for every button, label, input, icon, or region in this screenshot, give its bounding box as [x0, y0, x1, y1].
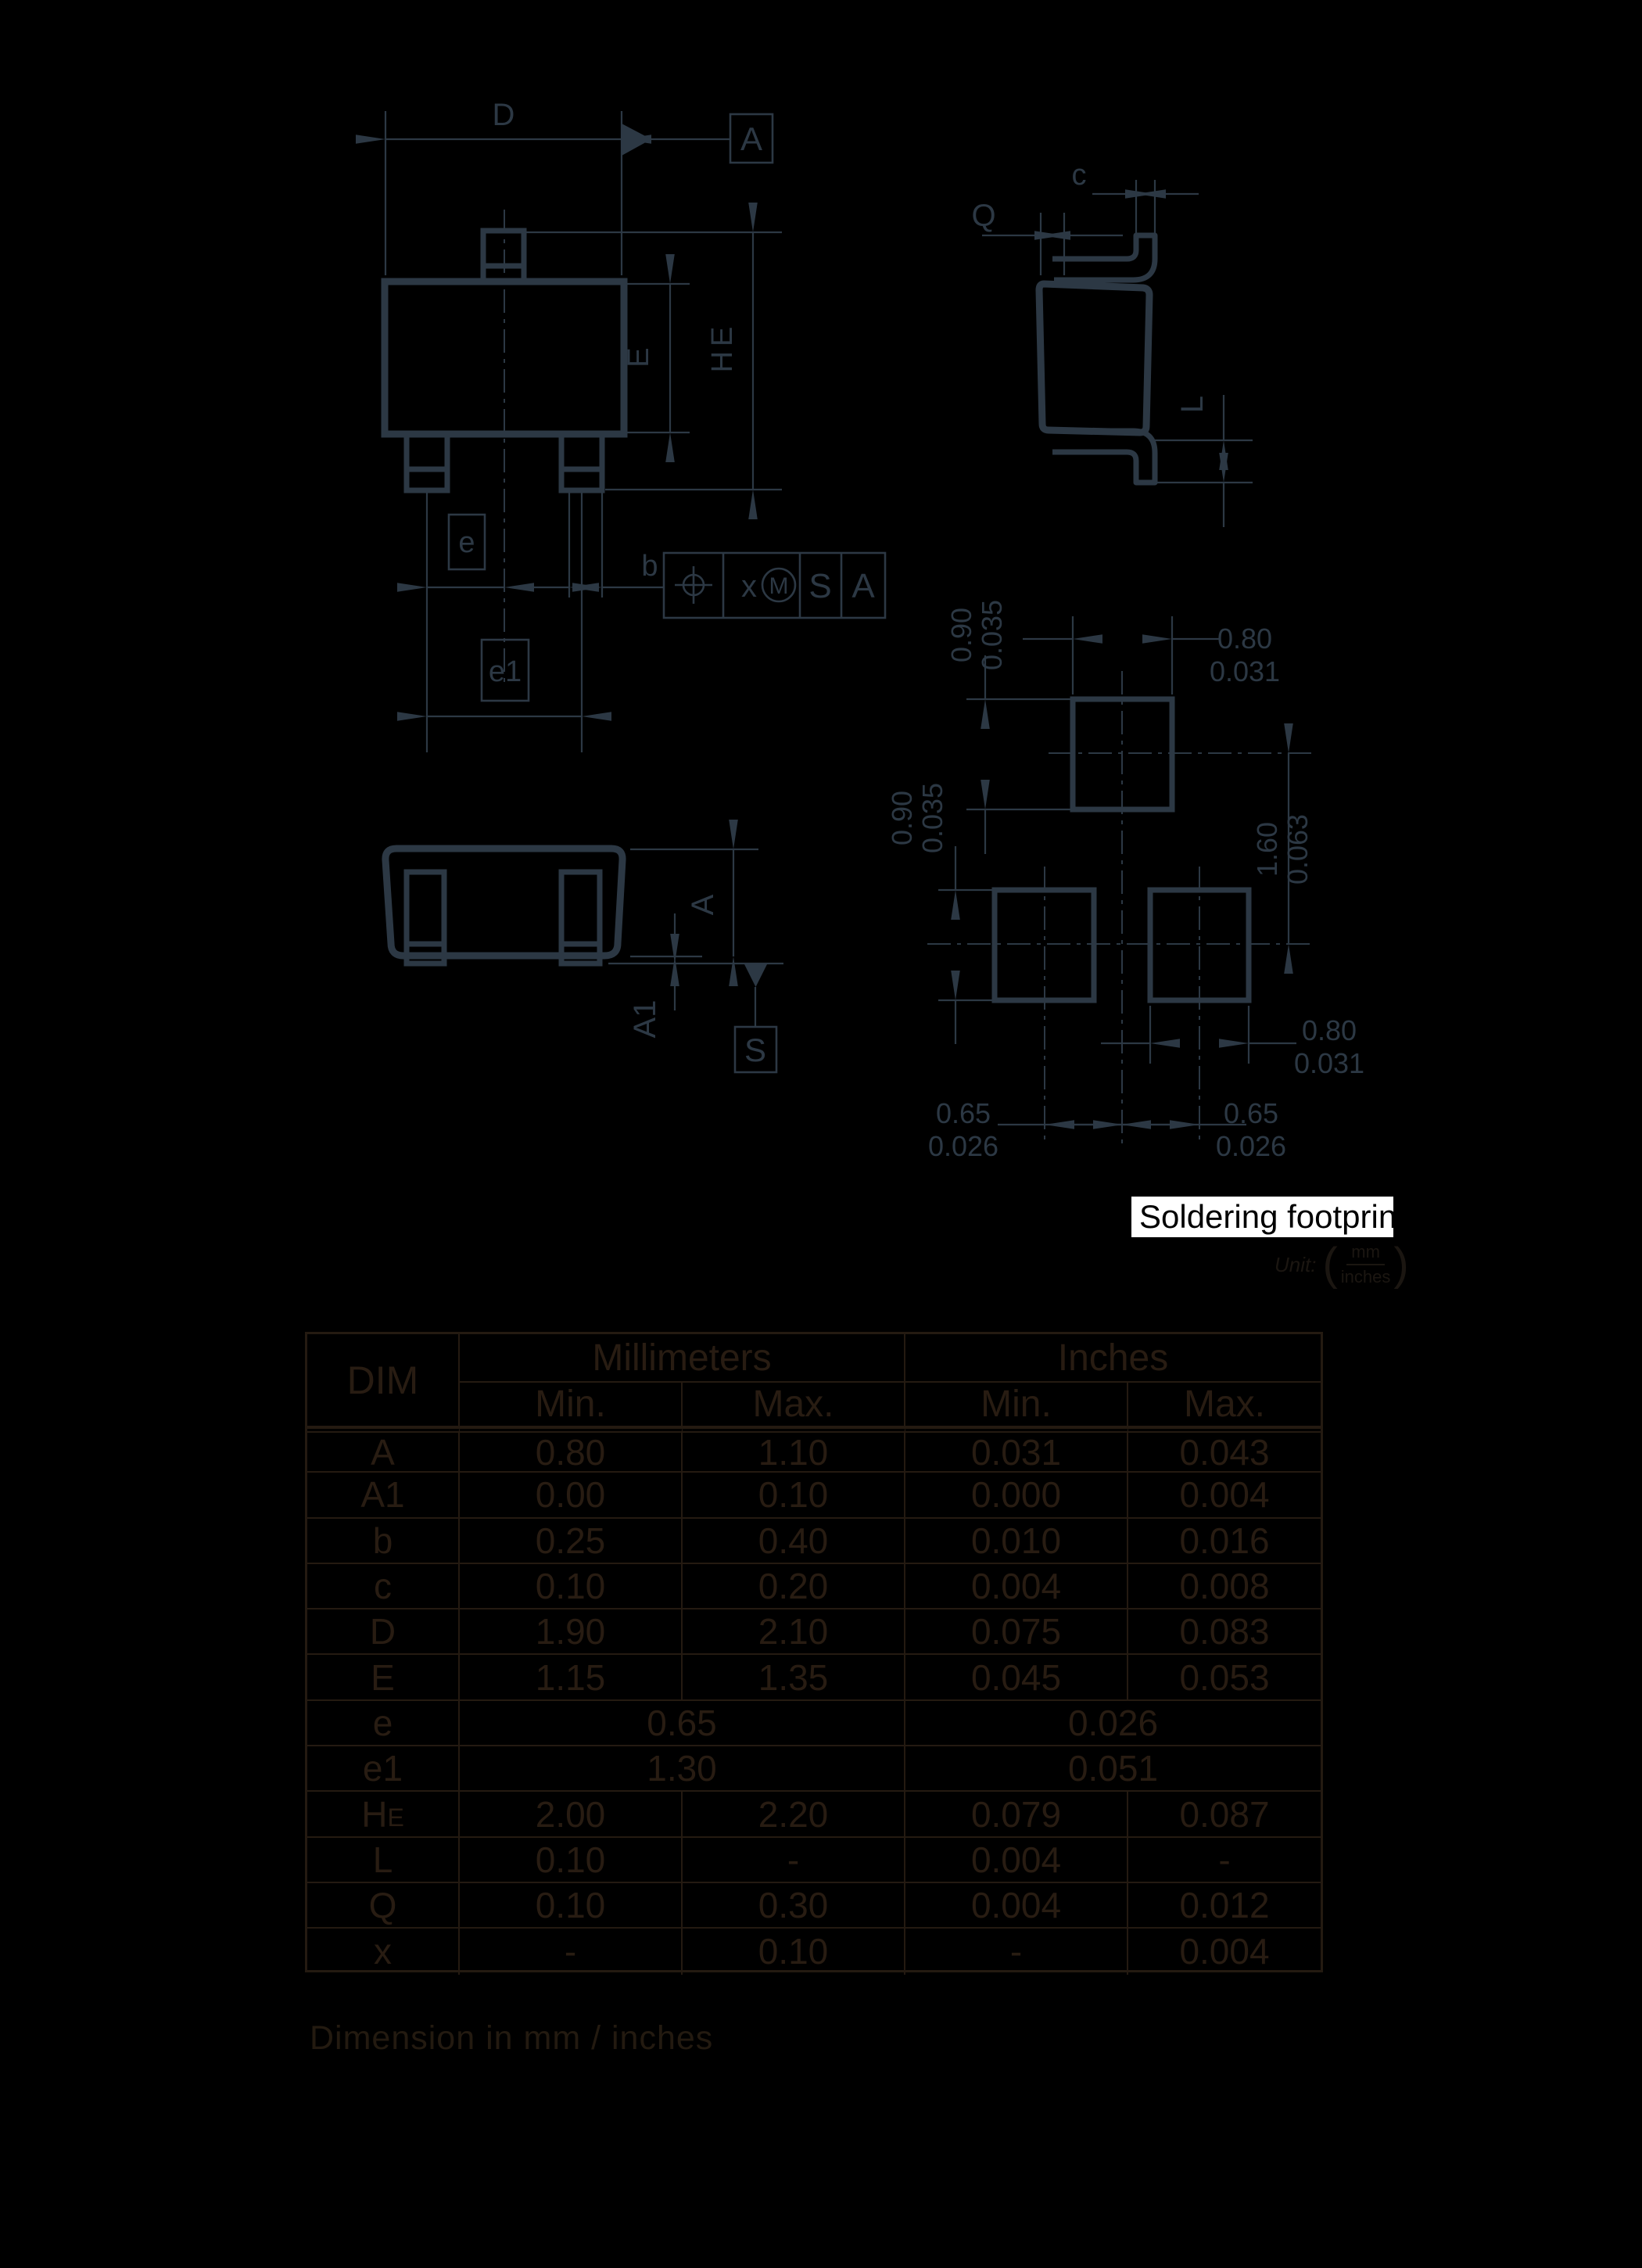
row-in-max: -	[1128, 1838, 1321, 1883]
fp-dim-pitch-l-mm: 0.65	[936, 1097, 991, 1129]
datum-a-label: A	[740, 120, 762, 157]
paren-close: )	[1393, 1245, 1408, 1284]
dim-label-a1: A1	[628, 1000, 662, 1039]
row-in-max: 0.004	[1128, 1929, 1321, 1974]
fp-dim-pitch-r-in: 0.026	[1216, 1130, 1286, 1162]
dim-label-he: HE	[706, 322, 739, 373]
row-in-max: 0.012	[1128, 1883, 1321, 1929]
dim-label-c: c	[1072, 159, 1087, 192]
row-dim-label: E	[307, 1655, 460, 1700]
datum-s-triangle	[744, 964, 767, 987]
fp-dim-top-h-in: 0.035	[976, 600, 1008, 670]
row-dim-label: HE	[307, 1792, 460, 1837]
dim-label-l: L	[1175, 396, 1210, 413]
paren-open: (	[1322, 1245, 1337, 1284]
row-mm-max: 0.40	[683, 1519, 905, 1564]
fp-dim-pitch-r-mm: 0.65	[1224, 1097, 1278, 1129]
unit-inches: inches	[1341, 1265, 1391, 1287]
soldering-footprint: 0.90 0.035 0.80 0.031 0.90 0.035 1.60 0.…	[886, 600, 1364, 1162]
dim-label-b: b	[641, 550, 658, 583]
row-mm-min: 1.90	[460, 1609, 683, 1655]
dim-subscript: E	[387, 1803, 403, 1832]
row-in-max: 0.053	[1128, 1655, 1321, 1700]
row-dim-label: b	[307, 1519, 460, 1564]
row-in-max: 0.087	[1128, 1792, 1321, 1837]
fcf-m-label: M	[769, 573, 789, 599]
col-header-inches: Inches	[905, 1334, 1321, 1383]
col-header-mm-min: Min.	[460, 1383, 683, 1427]
row-in-min: 0.004	[905, 1564, 1128, 1609]
fp-dim-bot-w-in: 0.031	[1294, 1047, 1364, 1079]
datum-s-label: S	[744, 1032, 766, 1068]
unit-prefix: Unit:	[1275, 1253, 1316, 1277]
fp-dim-pitch-l-in: 0.026	[928, 1130, 998, 1162]
soldering-footprint-caption: Soldering footprint	[1131, 1197, 1393, 1237]
col-header-dim: DIM	[307, 1334, 460, 1427]
dim-label-a: A	[686, 894, 720, 915]
side-view: c Q L	[971, 159, 1253, 527]
row-dim-label: A	[307, 1427, 460, 1473]
row-in-max: 0.043	[1128, 1427, 1321, 1473]
row-in-min: 0.004	[905, 1883, 1128, 1929]
fp-dim-top-h-mm: 0.90	[945, 608, 977, 662]
pin2-top	[561, 434, 602, 490]
fp-dim-bot-h-mm: 0.90	[886, 791, 918, 845]
row-mm-value: 0.65	[460, 1701, 905, 1746]
row-in-min: 0.045	[905, 1655, 1128, 1700]
feature-control-frame: x M S A	[664, 553, 885, 618]
row-mm-max: 0.20	[683, 1564, 905, 1609]
row-in-min: 0.000	[905, 1473, 1128, 1518]
row-mm-min: 0.25	[460, 1519, 683, 1564]
row-dim-label: D	[307, 1609, 460, 1655]
lead-top-side	[1052, 235, 1155, 280]
top-view: D A HE E e e1	[385, 98, 885, 752]
dim-label-e: E	[622, 347, 655, 367]
pin1-top	[407, 434, 447, 490]
datum-a-triangle	[622, 124, 651, 156]
col-header-in-max: Max.	[1128, 1383, 1321, 1427]
row-in-min: -	[905, 1929, 1128, 1974]
fp-dim-bot-h-in: 0.035	[916, 783, 948, 853]
row-mm-max: 2.20	[683, 1792, 905, 1837]
unit-note: Unit: ( mm inches )	[1275, 1242, 1409, 1287]
row-in-max: 0.008	[1128, 1564, 1321, 1609]
row-dim-label: Q	[307, 1883, 460, 1929]
row-mm-max: 2.10	[683, 1609, 905, 1655]
dimension-table: DIM Millimeters Inches Min. Max. Min. Ma…	[305, 1332, 1323, 1972]
row-mm-max: 0.10	[683, 1929, 905, 1974]
row-mm-value: 1.30	[460, 1746, 905, 1792]
row-mm-min: 0.10	[460, 1564, 683, 1609]
fcf-s-label: S	[808, 567, 831, 605]
row-mm-min: 0.00	[460, 1473, 683, 1518]
pin2-front	[561, 872, 600, 964]
dim-label-d: D	[493, 98, 515, 132]
position-tolerance-icon	[675, 566, 712, 604]
fcf-a-label: A	[851, 567, 875, 605]
row-in-min: 0.079	[905, 1792, 1128, 1837]
package-body-front	[385, 849, 622, 956]
row-in-min: 0.010	[905, 1519, 1128, 1564]
row-mm-min: 0.10	[460, 1838, 683, 1883]
row-mm-max: -	[683, 1838, 905, 1883]
pin1-front	[407, 872, 444, 964]
col-header-mm-max: Max.	[683, 1383, 905, 1427]
fp-dim-top-w-mm: 0.80	[1217, 623, 1272, 655]
front-view: A A1 S	[385, 849, 783, 1072]
row-dim-label: L	[307, 1838, 460, 1883]
fp-dim-top-w-in: 0.031	[1210, 655, 1280, 687]
row-in-min: 0.004	[905, 1838, 1128, 1883]
dimension-units-note: Dimension in mm / inches	[310, 2019, 713, 2058]
col-header-in-min: Min.	[905, 1383, 1128, 1427]
row-dim-label: A1	[307, 1473, 460, 1518]
row-mm-max: 1.10	[683, 1427, 905, 1473]
row-mm-max: 1.35	[683, 1655, 905, 1700]
fp-dim-bot-w-mm: 0.80	[1302, 1014, 1357, 1046]
row-mm-max: 0.10	[683, 1473, 905, 1518]
dim-label-e1: e1	[489, 655, 522, 688]
row-mm-min: 1.15	[460, 1655, 683, 1700]
row-dim-label: e	[307, 1701, 460, 1746]
fp-dim-pitch-v-mm: 1.60	[1251, 822, 1283, 877]
unit-mm: mm	[1346, 1242, 1385, 1265]
col-header-millimeters: Millimeters	[460, 1334, 905, 1383]
row-in-min: 0.031	[905, 1427, 1128, 1473]
lead-bottom-side	[1052, 431, 1155, 483]
dim-label-e-pitch: e	[458, 526, 475, 559]
row-dim-label: x	[307, 1929, 460, 1974]
row-in-min: 0.075	[905, 1609, 1128, 1655]
row-dim-label: e1	[307, 1746, 460, 1792]
row-mm-min: -	[460, 1929, 683, 1974]
row-mm-min: 0.10	[460, 1883, 683, 1929]
row-dim-label: c	[307, 1564, 460, 1609]
row-mm-min: 0.80	[460, 1427, 683, 1473]
dim-label-q: Q	[971, 199, 995, 233]
row-in-max: 0.083	[1128, 1609, 1321, 1655]
row-in-max: 0.004	[1128, 1473, 1321, 1518]
row-mm-min: 2.00	[460, 1792, 683, 1837]
package-body-side	[1039, 284, 1149, 432]
row-in-value: 0.051	[905, 1746, 1321, 1792]
row-in-value: 0.026	[905, 1701, 1321, 1746]
row-mm-max: 0.30	[683, 1883, 905, 1929]
fp-dim-pitch-v-in: 0.063	[1282, 814, 1314, 885]
datasheet-page: D A HE E e e1	[0, 0, 1642, 2268]
fcf-x-label: x	[741, 569, 757, 604]
row-in-max: 0.016	[1128, 1519, 1321, 1564]
